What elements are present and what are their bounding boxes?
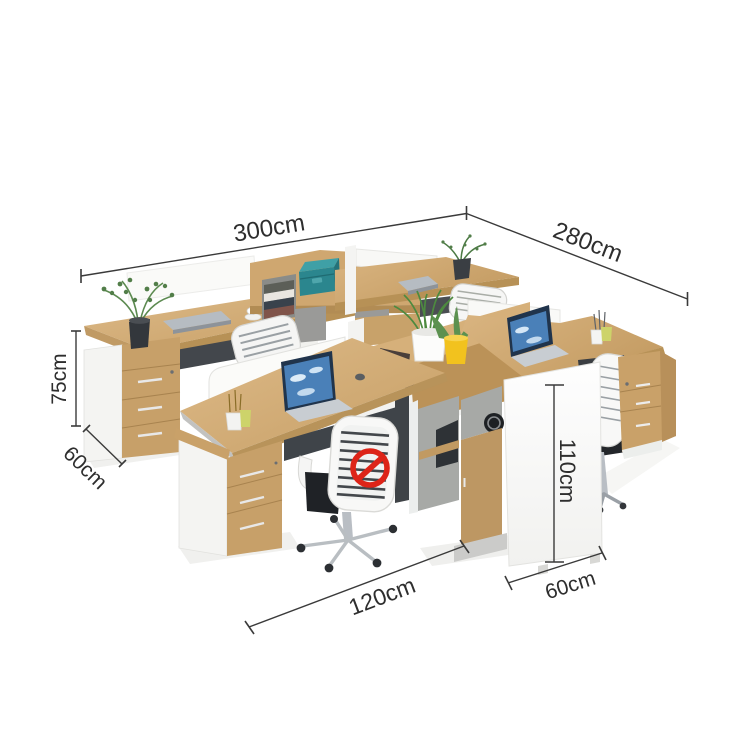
svg-text:75cm: 75cm [48,353,71,404]
svg-text:110cm: 110cm [555,439,580,503]
